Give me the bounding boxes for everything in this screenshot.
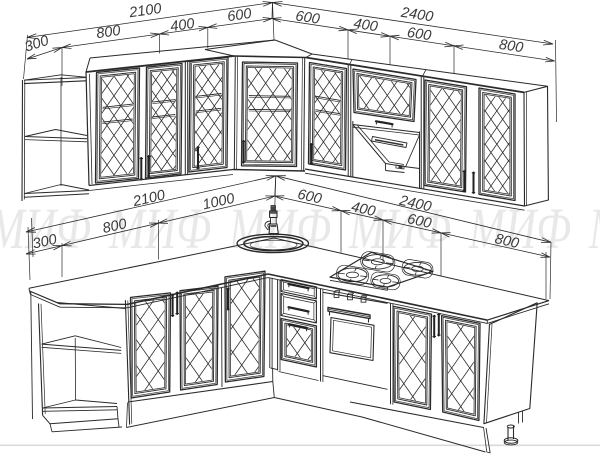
svg-text:600: 600 (226, 6, 252, 25)
svg-text:МИФ: МИФ (0, 196, 91, 261)
svg-text:400: 400 (169, 16, 195, 35)
svg-text:МИФ: МИФ (588, 196, 600, 261)
svg-text:800: 800 (95, 23, 121, 42)
